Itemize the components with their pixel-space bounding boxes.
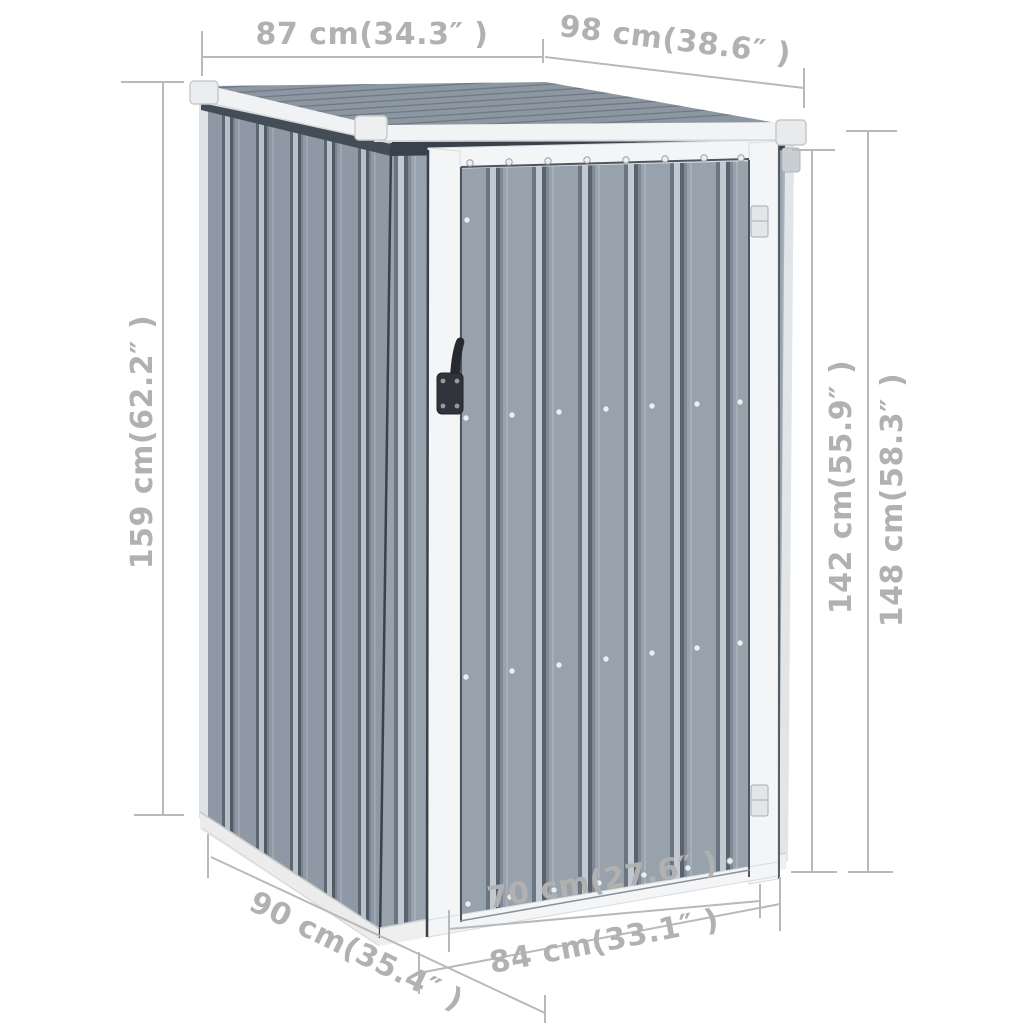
left-back-corner-trim bbox=[199, 98, 208, 826]
dim-height-front-right-label: 142 cm(55.9″ ) bbox=[824, 360, 859, 614]
roof-cap-middle bbox=[355, 116, 387, 140]
door-hinge-bottom bbox=[751, 785, 768, 816]
right-corner-cap bbox=[782, 148, 800, 172]
door-handle-plate bbox=[437, 373, 463, 414]
dim-height-left-label: 159 cm(62.2″ ) bbox=[125, 315, 160, 569]
door-panel bbox=[461, 158, 749, 921]
door-hinge-top bbox=[751, 206, 768, 237]
door-frame-left bbox=[428, 148, 460, 938]
roof-cap-right bbox=[776, 120, 806, 145]
product-image-canvas: 87 cm(34.3″ ) 98 cm(38.6″ ) 159 cm(62.2″… bbox=[0, 0, 1024, 1024]
roof-trim-front bbox=[374, 122, 794, 142]
door-frame-left-seam bbox=[427, 150, 428, 937]
dim-roof-side-label: 87 cm(34.3″ ) bbox=[255, 17, 488, 52]
left-wall-panel bbox=[202, 99, 391, 941]
roof-cap-left bbox=[190, 81, 218, 104]
door bbox=[427, 140, 779, 938]
shed-dimension-diagram: 87 cm(34.3″ ) 98 cm(38.6″ ) 159 cm(62.2″… bbox=[0, 0, 1024, 1024]
left-wall bbox=[199, 98, 391, 947]
dim-height-back-right-label: 148 cm(58.3″ ) bbox=[875, 373, 910, 627]
door-frame-right bbox=[749, 141, 778, 884]
